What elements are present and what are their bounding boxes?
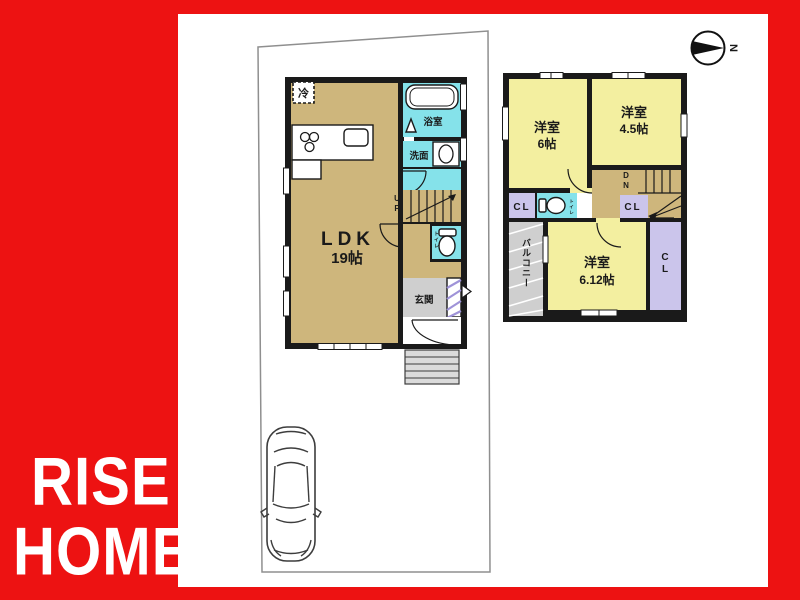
hall-1f [403, 169, 461, 190]
toilet-tank-1f [439, 229, 456, 236]
bed3-label: 洋室 [584, 255, 610, 270]
compass-north-label: N [727, 44, 739, 52]
toilet-label-2f: トイレ [569, 199, 575, 216]
room-ldk [291, 83, 398, 343]
kitchen-counter-return [292, 160, 321, 179]
stairs-up-label: UP [393, 194, 402, 214]
bath-label: 浴室 [423, 116, 443, 128]
bed1-label: 洋室 [534, 120, 560, 135]
kitchen-sink [344, 129, 368, 146]
bed2-label: 洋室 [621, 105, 647, 120]
closet3-label: CL [660, 252, 671, 276]
bed3-size-label: 6.12帖 [579, 272, 614, 287]
toilet-label-1f: トイレ [433, 231, 439, 249]
entrance-label: 玄関 [414, 294, 433, 306]
compass: N [692, 32, 740, 65]
balcony-label: バルコニー [521, 238, 531, 288]
ldk-size-label: 19帖 [331, 249, 363, 267]
toilet-bowl-1f [439, 236, 455, 256]
closet1-label: CL [513, 202, 530, 213]
entrance-steps [405, 350, 459, 384]
toilet-tank-2f [539, 199, 546, 212]
wash-label: 洗面 [409, 150, 429, 162]
ldk-label: LDK [321, 229, 375, 250]
toilet-bowl-2f [547, 198, 565, 214]
floor-2-plan: 洋室 6帖 洋室 4.5帖 洋室 6.12帖 CL CL CL DN トイレ バ… [503, 72, 688, 322]
parking-area [261, 427, 737, 600]
car [261, 427, 321, 561]
brand-line-1: RISE [31, 449, 171, 516]
closet2-label: CL [624, 202, 641, 213]
bed2-size-label: 4.5帖 [620, 121, 649, 136]
fridge-label: 冷 [298, 86, 309, 100]
bed1-size-label: 6帖 [538, 136, 557, 151]
stairs-down-label: DN [622, 171, 631, 191]
wash-basin [439, 145, 453, 163]
brand-line-2: HOME [13, 519, 192, 586]
floor-1-plan: LDK 19帖 冷 浴室 洗面 UP トイレ 玄関 [284, 77, 472, 384]
